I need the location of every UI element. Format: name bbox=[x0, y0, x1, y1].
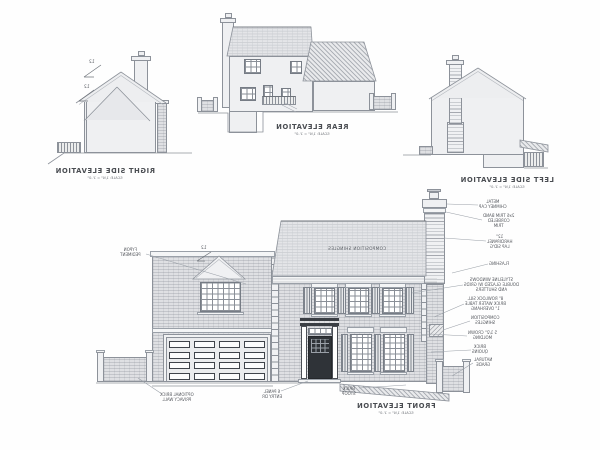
fe-privacy-wall-right bbox=[442, 366, 464, 392]
fe-wall-post bbox=[146, 352, 153, 382]
fe-garage-cornice bbox=[150, 251, 275, 257]
fe-shutter bbox=[374, 334, 381, 372]
title-rear-elevation: REAR ELEVATION bbox=[252, 123, 372, 131]
annotation-crown-molding: 5 1/2" CROWNMOLDING bbox=[468, 331, 497, 341]
fe-door-pilaster bbox=[332, 326, 338, 379]
fe-pediment-window bbox=[200, 282, 241, 312]
fe-window-sill bbox=[379, 314, 406, 317]
lse-chimney bbox=[449, 64, 462, 124]
scale-note: SCALE: 1/4" = 1'-0" bbox=[336, 411, 456, 415]
annotation-fypon-pediment: FYPONPEDIMENT bbox=[120, 248, 141, 258]
lse-lower-wall bbox=[483, 155, 524, 168]
re-chimney-cap bbox=[220, 18, 236, 23]
pitch-label: 12 bbox=[201, 246, 207, 251]
fe-chimney-quoins bbox=[421, 284, 427, 342]
leader-line bbox=[452, 264, 488, 273]
fe-window-sill bbox=[380, 372, 407, 375]
garage-panel bbox=[219, 352, 240, 359]
re-window-upper-left bbox=[244, 59, 261, 74]
rse-chimney-profile-cap bbox=[155, 100, 169, 104]
re-window-upper-right bbox=[290, 61, 302, 74]
re-wall-post bbox=[391, 93, 396, 110]
fe-pediment-window-sill bbox=[197, 312, 244, 315]
fe-privacy-wall-left bbox=[103, 357, 147, 382]
annotation-entry-door: 6 PANELENTRY DR bbox=[262, 390, 282, 400]
rse-window bbox=[114, 104, 126, 118]
fe-window-head bbox=[380, 327, 407, 333]
annotation-lap-siding: 12"HARDIPANELLAP SID'G bbox=[487, 235, 512, 249]
fe-window-sill bbox=[311, 314, 338, 317]
fe-door-transom bbox=[308, 328, 332, 335]
scale-note: SCALE: 1/4" = 1'-0" bbox=[252, 132, 372, 136]
garage-panel bbox=[244, 341, 265, 348]
annotation-comp-shingles: COMPOSITIONSHINGLES bbox=[471, 316, 499, 326]
fe-window-1f bbox=[383, 334, 405, 372]
rse-chimney-profile bbox=[157, 103, 167, 153]
re-chimney-flue bbox=[225, 13, 232, 18]
annotation-brick-quoins: BRICKQUOINS bbox=[472, 345, 488, 355]
re-wing-wall bbox=[313, 81, 375, 111]
fe-window-1f bbox=[350, 334, 372, 372]
garage-panel bbox=[194, 362, 215, 369]
garage-panel bbox=[169, 362, 190, 369]
elevation-sheet: RIGHT SIDE ELEVATION SCALE: 1/4" = 1'-0"… bbox=[0, 0, 600, 450]
annotation-natural-grade: NATURALGRADE bbox=[474, 358, 492, 368]
fe-door-stoop-step bbox=[298, 379, 341, 383]
garage-panel bbox=[219, 341, 240, 348]
fe-window-2f bbox=[382, 288, 403, 314]
roof-material-text: COMPOSITION SHINGLES bbox=[324, 246, 390, 251]
lse-wall bbox=[431, 97, 524, 155]
leader-line bbox=[444, 238, 486, 241]
fe-chimney-flue bbox=[429, 192, 439, 199]
garage-panel bbox=[169, 352, 190, 359]
fe-window-sill bbox=[347, 372, 374, 375]
title-front-elevation: FRONT ELEVATION bbox=[336, 402, 456, 410]
scale-note: SCALE: 1/4" = 1'-0" bbox=[45, 176, 165, 180]
annotation-trim-band: 2x6 TRIM BANDCORBELEDTRIM bbox=[483, 214, 514, 228]
fe-door-pilaster bbox=[301, 326, 307, 379]
lse-chimney-cap bbox=[446, 60, 464, 65]
fe-wall-post bbox=[463, 361, 470, 393]
annotation-rowlock: 8" ROWLOCK SILLBRICK WATER TABLE1" OVERH… bbox=[465, 297, 506, 311]
rse-chimney bbox=[134, 60, 148, 102]
lse-retaining-wall bbox=[419, 146, 433, 155]
fe-shutter bbox=[407, 334, 414, 372]
rse-chimney-cap bbox=[131, 56, 151, 61]
annotation-brick-stoop: BRICKSTOOP bbox=[342, 387, 356, 397]
garage-panel bbox=[169, 341, 190, 348]
leader-line bbox=[447, 204, 478, 205]
lse-chimney-flue bbox=[452, 55, 459, 60]
fe-window-2f bbox=[314, 288, 335, 314]
fe-window-head bbox=[347, 327, 374, 333]
re-privacy-wall-right bbox=[373, 96, 392, 110]
rse-chimney-flue bbox=[138, 51, 145, 56]
garage-panel bbox=[219, 362, 240, 369]
fe-window-sill bbox=[345, 314, 372, 317]
scale-note: SCALE: 1/4" = 1'-0" bbox=[447, 185, 567, 189]
leader-line bbox=[443, 321, 470, 330]
title-right-side-elevation: RIGHT SIDE ELEVATION bbox=[45, 167, 165, 175]
garage-panel bbox=[244, 352, 265, 359]
fe-door-glazing bbox=[311, 339, 329, 353]
pitch-label: 12 bbox=[89, 60, 95, 65]
fe-garage-floor-band bbox=[152, 328, 273, 333]
leader-line bbox=[359, 385, 406, 388]
garage-panel bbox=[194, 373, 215, 380]
annotation-privacy-wall: OPTIONAL BRICKPRIVACY WALL bbox=[160, 393, 194, 403]
rse-retaining-wall bbox=[57, 142, 81, 153]
leader-line bbox=[446, 212, 482, 220]
fe-door-entablature bbox=[300, 318, 339, 321]
garage-panel bbox=[194, 341, 215, 348]
fe-chimney-shoulder-roof bbox=[429, 324, 444, 337]
annotation-metal-chimney-cap: METALCHIMNEY CAP bbox=[479, 200, 507, 210]
re-wall-post bbox=[213, 97, 218, 112]
garage-panel bbox=[219, 373, 240, 380]
lse-porch-wall bbox=[523, 152, 544, 167]
annotation-flashing: FLASHING bbox=[489, 262, 509, 267]
re-window-lower bbox=[240, 87, 256, 101]
fe-chimney-shaft bbox=[424, 213, 445, 284]
garage-panel bbox=[244, 362, 265, 369]
lse-attic-window bbox=[474, 77, 482, 88]
garage-panel bbox=[169, 373, 190, 380]
annotation-windows: STYLELINE WINDOWSDOUBLE GLAZED W/ GRIDSA… bbox=[464, 278, 519, 292]
fe-shutter bbox=[405, 287, 414, 314]
fe-shutter bbox=[341, 334, 348, 372]
fe-shutter bbox=[303, 287, 312, 314]
fe-shutter bbox=[337, 287, 346, 314]
garage-panel bbox=[194, 352, 215, 359]
pitch-label: 12 bbox=[84, 85, 90, 90]
lse-chimney-base bbox=[447, 122, 464, 153]
title-left-side-elevation: LEFT SIDE ELEVATION bbox=[447, 176, 567, 184]
fe-shutter bbox=[371, 287, 380, 314]
re-deck-railing bbox=[262, 96, 296, 105]
fe-window-2f bbox=[348, 288, 369, 314]
garage-panel bbox=[244, 373, 265, 380]
fe-chimney-cap-band bbox=[422, 199, 447, 208]
